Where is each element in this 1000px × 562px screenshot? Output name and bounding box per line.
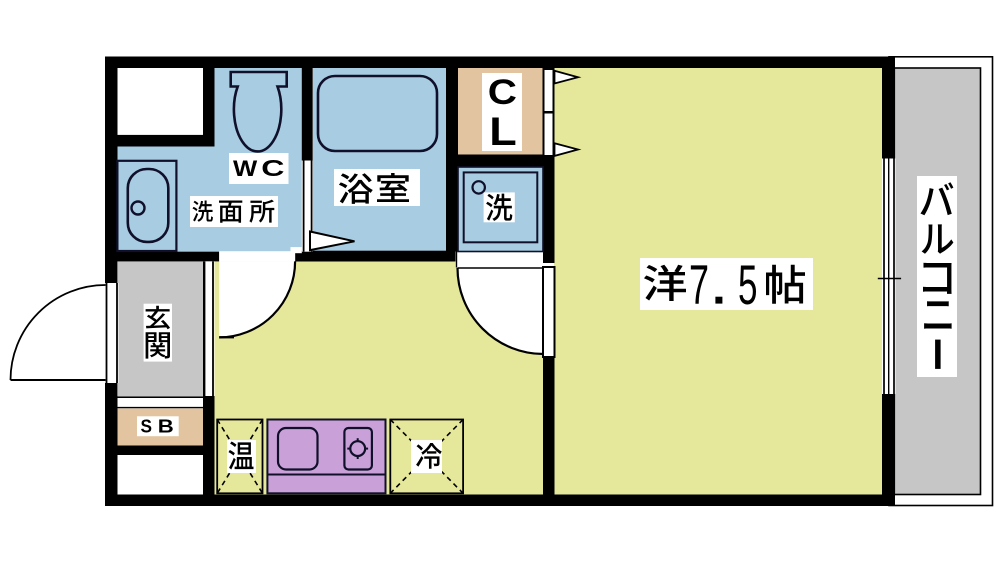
svg-text:B: B xyxy=(158,416,174,437)
svg-text:5: 5 xyxy=(738,254,758,316)
svg-text:L: L xyxy=(489,110,517,154)
svg-text:C: C xyxy=(488,72,517,112)
svg-text:7: 7 xyxy=(689,254,709,316)
svg-text:W: W xyxy=(233,156,257,181)
svg-text:S: S xyxy=(141,416,153,437)
svg-text:C: C xyxy=(261,155,284,181)
